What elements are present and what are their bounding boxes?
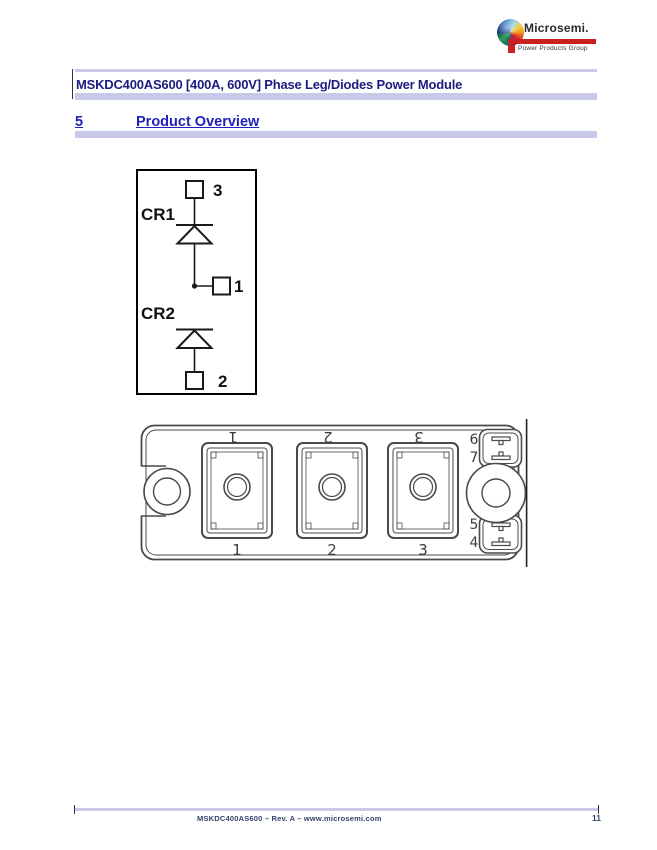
pad-2-top-label: 2 xyxy=(323,428,333,446)
schematic-figure: 3 CR1 1 CR2 2 xyxy=(136,169,257,395)
schematic-drawing: 3 CR1 1 CR2 2 xyxy=(138,171,255,393)
page-number: 11 xyxy=(592,813,601,823)
section-accent-bar xyxy=(75,131,597,138)
diode-cr2-triangle xyxy=(178,331,212,349)
pad-1-top-label: 1 xyxy=(228,428,238,446)
diode-cr1-triangle xyxy=(178,226,212,244)
terminal-pad-3 xyxy=(388,443,458,538)
module-figure: 1 2 3 1 2 3 6 7 5 4 xyxy=(139,419,528,567)
header-top-rule xyxy=(75,69,597,72)
terminal-1-label: 1 xyxy=(234,277,243,296)
right-mounting-hole-outer xyxy=(467,464,526,523)
diode-cr2-label: CR2 xyxy=(141,304,175,323)
footer-left-tick xyxy=(74,805,75,814)
pad-3-top-label: 3 xyxy=(414,428,424,446)
pin-4-label: 4 xyxy=(470,535,479,551)
footer-text: MSKDC400AS600 – Rev. A – www.microsemi.c… xyxy=(197,814,382,823)
terminal-pad-2 xyxy=(297,443,367,538)
terminal-3-square xyxy=(186,181,203,198)
pad-2-bottom-label: 2 xyxy=(327,541,337,559)
pin-7-label: 7 xyxy=(470,450,479,466)
section-number-link[interactable]: 5 xyxy=(75,114,83,130)
terminal-3-label: 3 xyxy=(213,181,222,200)
module-drawing: 1 2 3 1 2 3 6 7 5 4 xyxy=(139,419,528,567)
terminal-2-square xyxy=(186,372,203,389)
figure-right-border xyxy=(526,419,528,567)
brand-red-rule xyxy=(508,39,596,44)
pin-6-label: 6 xyxy=(470,432,479,448)
terminal-pad-1 xyxy=(202,443,272,538)
pad-3-bottom-label: 3 xyxy=(418,541,428,559)
left-mounting-hole-outer xyxy=(144,469,190,515)
terminal-1-square xyxy=(213,278,230,295)
left-notch-gap xyxy=(139,467,143,516)
diode-cr1-label: CR1 xyxy=(141,205,175,224)
pin-housing-top xyxy=(480,430,522,468)
document-title: MSKDC400AS600 [400A, 600V] Phase Leg/Dio… xyxy=(76,77,576,92)
brand-name: Microsemi. xyxy=(524,21,589,35)
pad-1-bottom-label: 1 xyxy=(232,541,242,559)
section-title-link[interactable]: Product Overview xyxy=(136,114,259,130)
brand-red-flag xyxy=(508,45,515,53)
title-accent-bar xyxy=(75,93,597,100)
pin-5-label: 5 xyxy=(470,517,479,533)
datasheet-page: Microsemi. Power Products Group MSKDC400… xyxy=(0,0,657,850)
footer-rule xyxy=(75,808,598,811)
header-left-tick xyxy=(72,69,73,99)
terminal-2-label: 2 xyxy=(218,372,227,391)
brand-tagline: Power Products Group xyxy=(518,45,588,52)
